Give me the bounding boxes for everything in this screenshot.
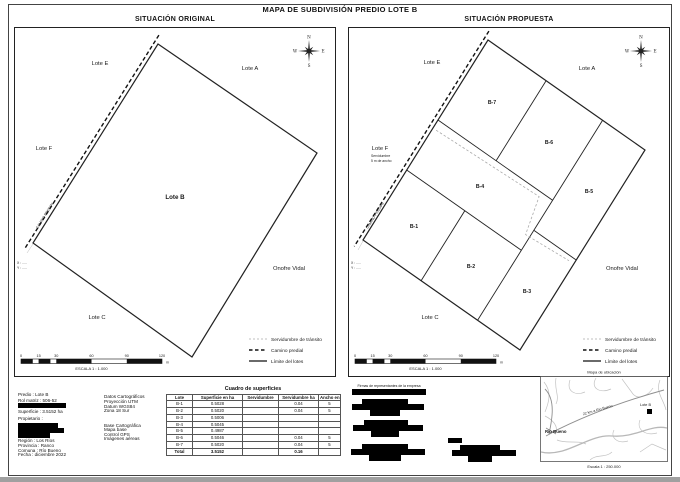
table-cell: 0.16 <box>279 448 319 455</box>
table-cell: 5 <box>319 442 341 449</box>
table-cell: B-4 <box>167 421 193 428</box>
coord-y-hint: Y : ..... <box>351 266 361 270</box>
compass-e: E <box>321 49 324 54</box>
table-cell: 0.04 <box>279 408 319 415</box>
scale-tick: 120 <box>493 354 499 358</box>
carto-line: Imágenes aéreas <box>104 436 140 441</box>
compass-w: W <box>625 49 630 54</box>
table-cell <box>243 408 279 415</box>
table-row: B-30.5006 <box>167 414 341 421</box>
superficies-table-body: B-10.50280.045B-20.50200.045B-30.5006B-4… <box>167 401 341 455</box>
neighbor-lote-e: Lote E <box>92 61 109 67</box>
table-cell: 0.04 <box>279 442 319 449</box>
table-cell: B-7 <box>167 442 193 449</box>
table-row: B-10.50280.045 <box>167 401 341 408</box>
table-cell: B-1 <box>167 401 193 408</box>
table-cell: B-3 <box>167 414 193 421</box>
table-header-row: LoteSuperficie en haServidumbreServidumb… <box>167 394 341 401</box>
table-cell: 0.5006 <box>193 414 243 421</box>
table-cell: Total <box>167 448 193 455</box>
legend-label: Camino predial <box>605 348 637 354</box>
table-row: B-40.5045 <box>167 421 341 428</box>
table-cell: 0.04 <box>279 401 319 408</box>
compass-n: N <box>307 35 311 40</box>
table-title: Cuadro de superficies <box>166 386 340 392</box>
page-edge-shadow <box>0 477 680 482</box>
table-cell: 0.5045 <box>193 421 243 428</box>
site-marker-icon <box>647 409 652 414</box>
table-cell <box>319 421 341 428</box>
servidumbre-note-line1: Servidumbre <box>371 154 390 158</box>
table-cell <box>243 421 279 428</box>
scale-tick: 0 <box>20 354 22 358</box>
coord-x-hint: X : ..... <box>351 261 361 265</box>
info-superficie: Superficie : 3.5152 ha <box>18 409 63 414</box>
table-cell: B-6 <box>167 435 193 442</box>
table-cell <box>243 442 279 449</box>
legend-label: Límite del lotes <box>271 359 304 365</box>
table-cell: 3.5152 <box>193 448 243 455</box>
legend-label: Camino predial <box>271 348 303 354</box>
legend-label: Servidumbre de tránsito <box>605 337 656 343</box>
table-cell: 5 <box>319 408 341 415</box>
table-cell: B-2 <box>167 408 193 415</box>
scale-unit: m <box>500 361 503 365</box>
redacted-signature <box>369 455 401 461</box>
table-row: B-60.50460.045 <box>167 435 341 442</box>
map-sheet: MAPA DE SUBDIVISIÓN PREDIO LOTE B SITUAC… <box>0 0 680 482</box>
lot-b7-label: B-7 <box>488 100 496 106</box>
minimap-frame <box>541 377 668 462</box>
neighbor-lote-e: Lote E <box>424 60 441 66</box>
table-cell: 0.04 <box>279 435 319 442</box>
table-cell: 0.4987 <box>193 428 243 435</box>
table-cell <box>319 448 341 455</box>
table-cell <box>243 435 279 442</box>
minimap-caption: Mapa de ubicación <box>587 370 621 375</box>
table-cell <box>243 414 279 421</box>
info-fecha: Fecha : diciembre 2022 <box>18 452 66 457</box>
scale-tick: 15 <box>36 354 40 358</box>
scale-unit: m <box>166 361 169 365</box>
info-rol: Rol matriz : 506-52 <box>18 398 57 403</box>
minimap-city-label: Río Bueno <box>545 429 567 434</box>
neighbor-lote-a: Lote A <box>579 66 596 72</box>
neighbor-lote-c: Lote C <box>88 315 105 321</box>
table-row: B-70.50200.045 <box>167 442 341 449</box>
info-predio: Predio : Lote B <box>18 392 48 397</box>
redacted-signature-bar <box>352 389 426 395</box>
table-cell: 0.5020 <box>193 408 243 415</box>
superficies-section: Cuadro de superficies LoteSuperficie en … <box>166 386 340 456</box>
lot-b6-label: B-6 <box>545 140 553 146</box>
table-row: B-20.50200.045 <box>167 408 341 415</box>
minimap-site-label: Lote B <box>640 403 651 407</box>
table-cell: 5 <box>319 401 341 408</box>
legend-label: Servidumbre de tránsito <box>271 337 322 343</box>
scale-tick: 15 <box>370 354 374 358</box>
redacted-signature <box>370 410 400 416</box>
scale-tick: 30 <box>54 354 58 358</box>
neighbor-lote-a: Lote A <box>242 66 259 72</box>
lot-b1-label: B-1 <box>410 224 418 230</box>
neighbor-lote-f: Lote F <box>36 146 53 152</box>
table-header-cell: Servidumbre <box>243 394 279 401</box>
redacted-signature <box>371 431 399 437</box>
compass-s: S <box>308 63 311 68</box>
carto-title: Datos Cartográficos <box>104 394 145 399</box>
scale-tick: 60 <box>423 354 427 358</box>
location-minimap: Mapa de ubicación <box>541 370 668 470</box>
neighbor-lote-f: Lote F <box>372 146 389 152</box>
table-cell <box>279 414 319 421</box>
scale-tick: 30 <box>388 354 392 358</box>
carto-line: Zona 18 Sur <box>104 408 129 413</box>
superficies-table: LoteSuperficie en haServidumbreServidumb… <box>166 394 341 456</box>
scale-tick: 90 <box>125 354 129 358</box>
scale-tick: 0 <box>354 354 356 358</box>
coord-y-hint: Y : ..... <box>17 266 27 270</box>
table-total-row: Total3.51520.16 <box>167 448 341 455</box>
table-cell: 0.5046 <box>193 435 243 442</box>
redacted-signature <box>468 456 492 462</box>
redacted-text <box>18 403 66 408</box>
servidumbre-note-line2: 5 m de ancho <box>371 159 392 163</box>
table-cell <box>279 428 319 435</box>
lot-b2-label: B-2 <box>467 264 475 270</box>
table-cell <box>243 401 279 408</box>
legend-label: Límite del lotes <box>605 359 638 365</box>
lot-b4-label: B-4 <box>476 184 484 190</box>
panel-proposed-frame <box>349 28 670 377</box>
lote-b-label: Lote B <box>165 194 185 201</box>
table-cell: 0.5028 <box>193 401 243 408</box>
table-cell <box>279 421 319 428</box>
neighbor-onofre-vidal: Onofre Vidal <box>606 266 638 272</box>
lot-b3-label: B-3 <box>523 289 531 295</box>
minimap-scale-label: Escala 1 : 250.000 <box>587 464 621 469</box>
lot-b5-label: B-5 <box>585 189 593 195</box>
table-cell <box>319 414 341 421</box>
table-cell: 5 <box>319 435 341 442</box>
neighbor-onofre-vidal: Onofre Vidal <box>273 266 305 272</box>
table-cell <box>243 428 279 435</box>
compass-e: E <box>653 49 656 54</box>
table-cell: 0.5020 <box>193 442 243 449</box>
scale-label: ESCALA 1 : 1.000 <box>409 366 442 371</box>
compass-s: S <box>640 63 643 68</box>
table-header-cell: Lote <box>167 394 193 401</box>
table-header-cell: Superficie en ha <box>193 394 243 401</box>
compass-w: W <box>293 49 298 54</box>
compass-n: N <box>639 35 643 40</box>
table-cell <box>243 448 279 455</box>
scale-tick: 120 <box>159 354 165 358</box>
scale-tick: 90 <box>459 354 463 358</box>
table-cell <box>319 428 341 435</box>
scale-label: ESCALA 1 : 1.000 <box>75 366 108 371</box>
neighbor-lote-c: Lote C <box>421 315 438 321</box>
table-cell: B-5 <box>167 428 193 435</box>
redacted-signature <box>448 438 462 443</box>
info-propietario: Propietario : <box>18 416 43 421</box>
table-header-cell: Ancho en m <box>319 394 341 401</box>
scale-tick: 60 <box>89 354 93 358</box>
table-row: B-50.4987 <box>167 428 341 435</box>
table-header-cell: Servidumbre ha <box>279 394 319 401</box>
coord-x-hint: X : ..... <box>17 261 27 265</box>
